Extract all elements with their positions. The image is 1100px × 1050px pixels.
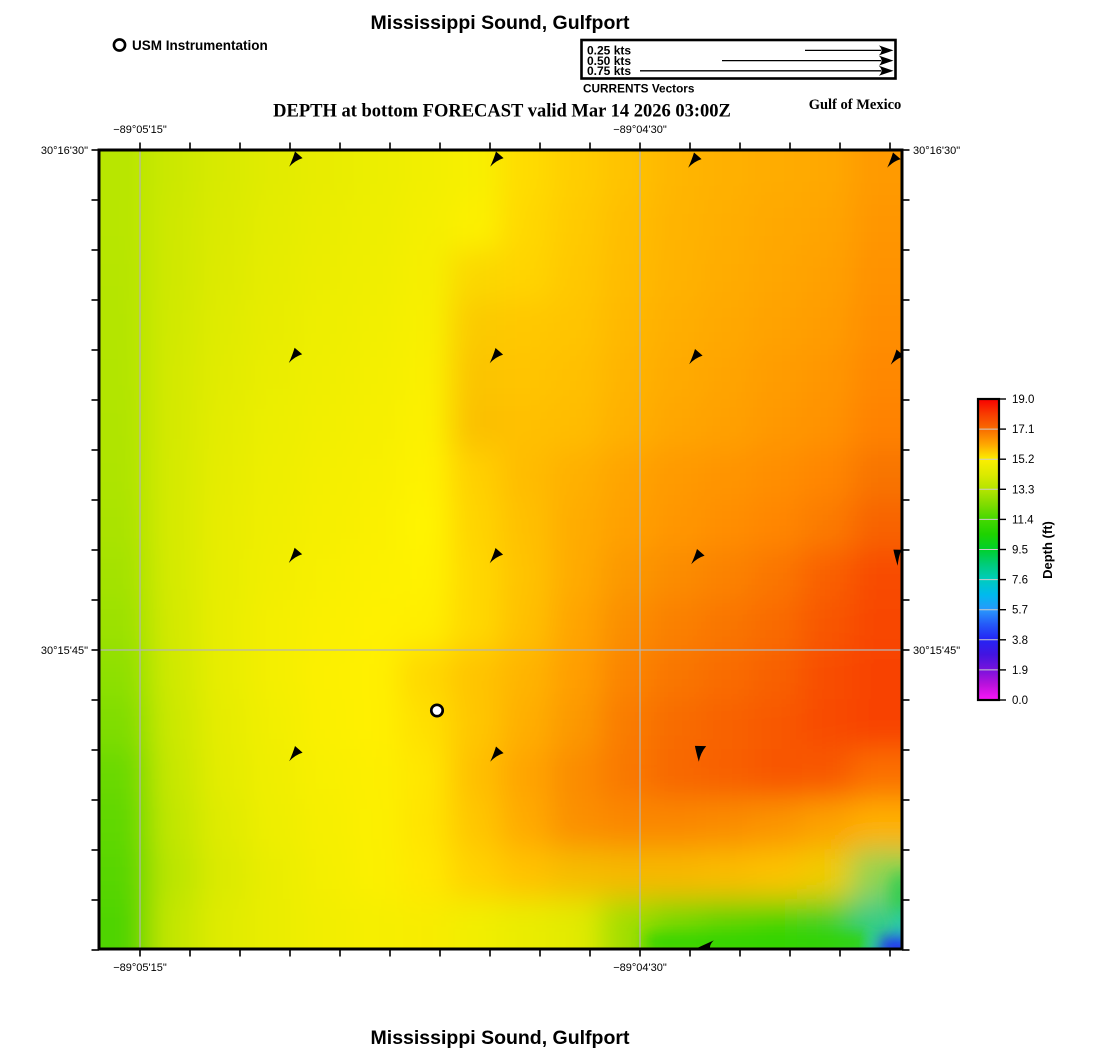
svg-text:13.3: 13.3 [1012,484,1034,496]
svg-text:5.7: 5.7 [1012,605,1028,617]
svg-text:15.2: 15.2 [1012,454,1034,466]
svg-text:Mississippi Sound, Gulfport: Mississippi Sound, Gulfport [371,12,630,34]
svg-text:7.6: 7.6 [1012,575,1028,587]
svg-text:1.9: 1.9 [1012,665,1028,677]
svg-text:17.1: 17.1 [1012,424,1034,436]
svg-text:−89°05'15": −89°05'15" [113,962,167,974]
svg-text:−89°04'30": −89°04'30" [613,962,667,974]
svg-text:30°16'30": 30°16'30" [913,145,960,157]
svg-text:CURRENTS Vectors: CURRENTS Vectors [583,82,695,96]
svg-text:9.5: 9.5 [1012,545,1028,557]
svg-text:−89°05'15": −89°05'15" [113,124,167,136]
svg-text:19.0: 19.0 [1012,394,1034,406]
svg-text:11.4: 11.4 [1012,514,1034,526]
svg-text:USM Instrumentation: USM Instrumentation [132,38,268,53]
svg-text:Mississippi Sound, Gulfport: Mississippi Sound, Gulfport [371,1027,630,1049]
svg-text:Depth (ft): Depth (ft) [1040,521,1055,579]
svg-text:DEPTH at bottom FORECAST valid: DEPTH at bottom FORECAST valid Mar 14 20… [273,102,731,122]
svg-text:30°16'30": 30°16'30" [41,145,88,157]
svg-text:3.8: 3.8 [1012,635,1028,647]
svg-text:−89°04'30": −89°04'30" [613,124,667,136]
svg-text:0.75 kts: 0.75 kts [587,64,631,78]
svg-text:Gulf of Mexico: Gulf of Mexico [809,97,902,113]
svg-text:0.0: 0.0 [1012,695,1028,707]
svg-text:30°15'45": 30°15'45" [41,645,88,657]
svg-text:30°15'45": 30°15'45" [913,645,960,657]
